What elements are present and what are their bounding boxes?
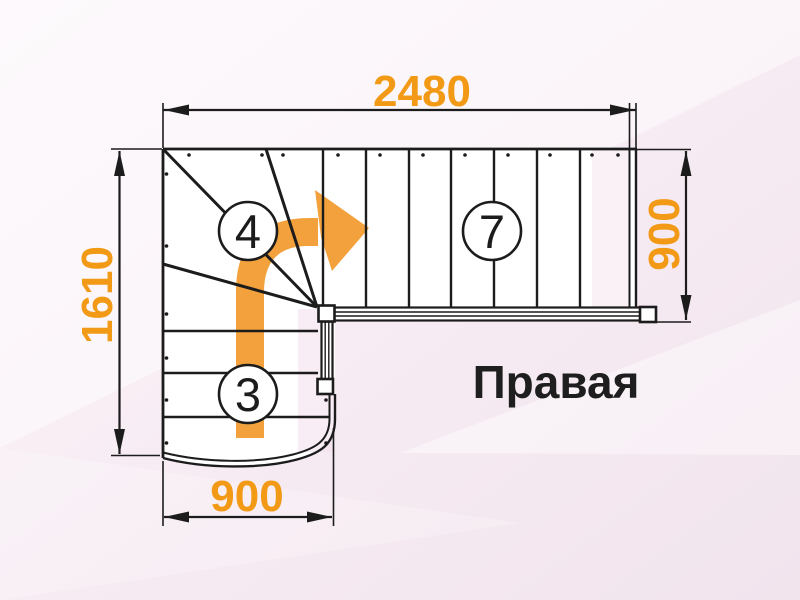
dimension-right-label: 900: [640, 197, 689, 270]
orientation-title: Правая: [473, 356, 640, 408]
dimension-left-label: 1610: [73, 246, 122, 344]
handrail-lower: [322, 322, 333, 380]
dot: [590, 153, 594, 157]
center-post: [319, 306, 335, 322]
dot: [506, 153, 510, 157]
dimension-top-label: 2480: [373, 67, 471, 116]
dot: [616, 153, 620, 157]
dot: [421, 153, 425, 157]
dot: [324, 398, 328, 402]
dot: [165, 398, 169, 402]
handrail-band: [334, 308, 640, 321]
dot: [548, 153, 552, 157]
dot: [378, 153, 382, 157]
handrail-band: [322, 322, 333, 380]
dot: [165, 312, 169, 316]
step-count-badge-upper: 7: [463, 202, 521, 260]
dot: [165, 244, 169, 248]
dimension-bottom-label: 900: [210, 472, 283, 521]
tint-upper-flight: [592, 150, 629, 308]
newel-bottom: [318, 379, 334, 394]
dot: [324, 441, 328, 445]
newel-top-right: [640, 307, 656, 322]
winder-steps-count: 4: [235, 205, 261, 258]
dot: [260, 153, 264, 157]
dot: [165, 441, 169, 445]
dot: [281, 153, 285, 157]
dot: [165, 172, 169, 176]
step-count-badge-lower: 3: [219, 365, 277, 423]
staircase-plan-diagram: 2480 1610 900 900 4 7: [0, 0, 800, 600]
dot: [187, 153, 191, 157]
dot: [165, 356, 169, 360]
handrail-upper: [334, 308, 640, 321]
dot: [463, 153, 467, 157]
upper-steps-count: 7: [479, 205, 505, 258]
lower-steps-count: 3: [235, 368, 261, 421]
staircase-plan-screenshot: 2480 1610 900 900 4 7: [0, 0, 800, 600]
dot: [336, 153, 340, 157]
step-count-badge-winder: 4: [219, 202, 277, 260]
